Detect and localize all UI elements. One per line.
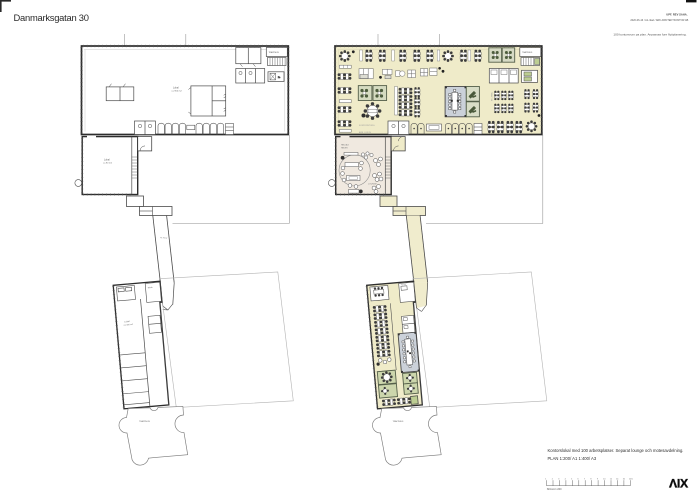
svg-text:Danmarksgatan 30: Danmarksgatan 30 [14, 12, 89, 23]
svg-text:TEAM YTA: TEAM YTA [490, 92, 493, 102]
svg-text:12: 12 [610, 479, 612, 481]
svg-text:10: 10 [603, 479, 605, 481]
svg-text:TRAPPHUS: TRAPPHUS [269, 51, 280, 54]
svg-text:5: 5 [571, 479, 572, 481]
svg-text:HEDER: HEDER [341, 147, 348, 149]
svg-text:2: 2 [552, 479, 553, 481]
svg-text:3: 3 [558, 479, 559, 481]
svg-text:16: 16 [623, 479, 625, 481]
svg-text:14: 14 [616, 479, 618, 481]
svg-text:Fo: Fo [278, 77, 280, 79]
svg-text:ΛIX: ΛIX [669, 477, 689, 491]
svg-text:ca 90 m2: ca 90 m2 [103, 163, 113, 165]
svg-text:Lokal: Lokal [173, 87, 179, 90]
svg-text:PLAN 1:200/ A1 1:400/ A3: PLAN 1:200/ A1 1:400/ A3 [548, 456, 597, 461]
svg-text:4: 4 [565, 479, 566, 481]
svg-text:9: 9 [597, 479, 598, 481]
svg-text:LOUNGE: LOUNGE [368, 184, 377, 186]
svg-text:KONTORSTORG: KONTORSTORG [359, 125, 375, 127]
svg-text:ca 900 m2: ca 900 m2 [172, 91, 183, 93]
svg-text:SKALA 1:200: SKALA 1:200 [547, 488, 562, 491]
svg-text:TRAPPHUS: TRAPPHUS [522, 51, 533, 54]
svg-text:Forrad: Forrad [401, 283, 406, 286]
svg-text:TRAPPHUS: TRAPPHUS [139, 420, 151, 423]
svg-text:HELDAG: HELDAG [341, 144, 349, 147]
svg-text:Lokal: Lokal [104, 159, 110, 162]
svg-text:8: 8 [590, 479, 591, 481]
svg-text:2020-06-16 / A1-ritad / ARK AR: 2020-06-16 / A1-ritad / ARK ARKITEKTKONT… [630, 19, 688, 22]
svg-text:Kontorslokal med 100 arbetspla: Kontorslokal med 100 arbetsplatser. Sepa… [548, 448, 684, 453]
svg-text:7: 7 [584, 479, 585, 481]
svg-text:1: 1 [545, 479, 546, 481]
svg-text:UPF. REV SAHA.: UPF. REV SAHA. [666, 12, 687, 16]
svg-text:ARB. LUNCH: ARB. LUNCH [359, 131, 372, 134]
svg-text:6: 6 [578, 479, 579, 481]
svg-text:20m: 20m [629, 479, 633, 481]
svg-text:Mote: Mote [371, 286, 375, 289]
svg-text:100 kontorsrum pa plan. Anpass: 100 kontorsrum pa plan. Anpassas fore fl… [613, 33, 686, 37]
svg-text:TRAPPHUS: TRAPPHUS [393, 420, 405, 423]
